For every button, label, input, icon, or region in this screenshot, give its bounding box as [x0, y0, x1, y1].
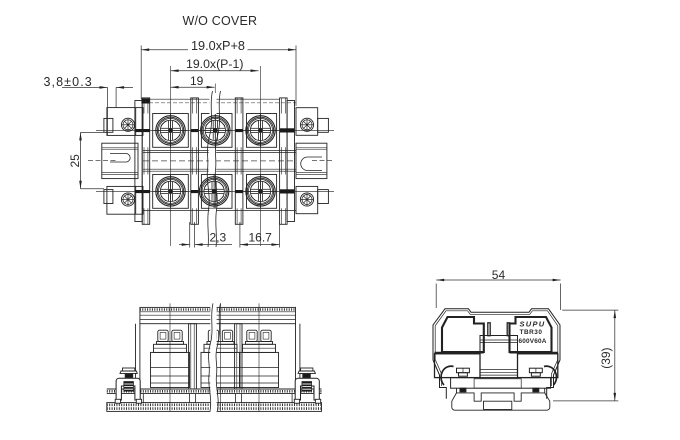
- svg-text:2,3: 2,3: [210, 231, 227, 245]
- svg-text:16.7: 16.7: [249, 231, 273, 245]
- svg-text:SUPU: SUPU: [519, 319, 545, 328]
- svg-text:19.0x(P-1): 19.0x(P-1): [186, 57, 243, 71]
- svg-text:W/O COVER: W/O COVER: [183, 14, 258, 28]
- svg-text:TBR30: TBR30: [520, 329, 543, 336]
- svg-text:3,8±0.3: 3,8±0.3: [44, 75, 93, 89]
- svg-text:25: 25: [68, 154, 82, 168]
- svg-text:(39): (39): [599, 347, 613, 368]
- svg-text:19.0xP+8: 19.0xP+8: [191, 39, 245, 53]
- svg-text:54: 54: [492, 268, 506, 282]
- svg-text:19: 19: [190, 74, 204, 88]
- svg-text:600V60A: 600V60A: [518, 338, 546, 345]
